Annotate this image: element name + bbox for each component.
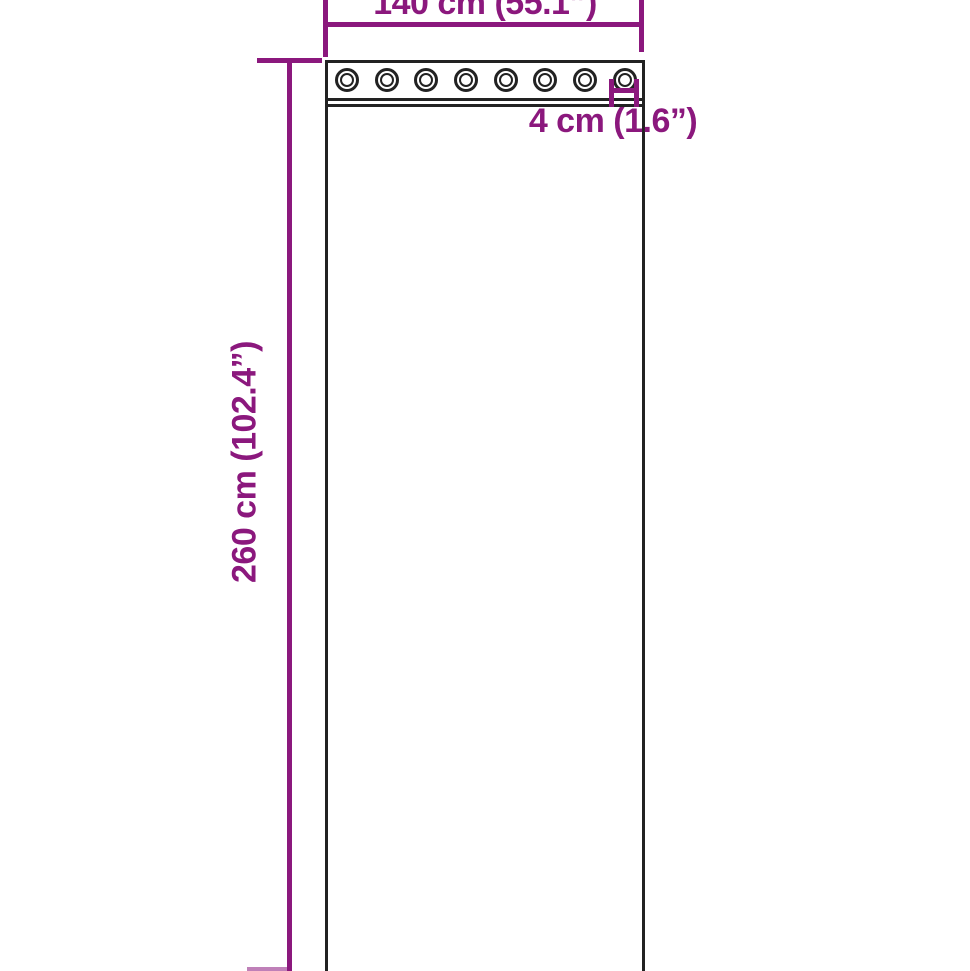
grommet-inner-ring	[340, 73, 354, 87]
grommet-inner-ring	[459, 73, 473, 87]
grommet-icon	[573, 68, 597, 92]
width-dimension-line	[323, 22, 643, 27]
grommet-inner-ring	[380, 73, 394, 87]
grommet-inner-ring	[618, 73, 632, 87]
width-dimension-tick-left	[323, 0, 328, 57]
curtain-panel	[325, 60, 645, 971]
grommet-inner-ring	[499, 73, 513, 87]
grommet-icon	[375, 68, 399, 92]
grommet-strip	[328, 68, 642, 92]
grommet-diameter-label: 4 cm (1.6”)	[529, 103, 697, 140]
grommet-inner-ring	[419, 73, 433, 87]
grommet-icon	[454, 68, 478, 92]
dimension-diagram: 140 cm (55.1”) 260 cm (102.4”) 4 cm (1.6…	[0, 0, 970, 971]
grommet-diameter-bracket-bar	[609, 88, 639, 93]
width-dimension-label: 140 cm (55.1”)	[373, 0, 597, 22]
grommet-icon	[335, 68, 359, 92]
grommet-inner-ring	[578, 73, 592, 87]
grommet-inner-ring	[538, 73, 552, 87]
grommet-icon	[414, 68, 438, 92]
grommet-icon	[533, 68, 557, 92]
height-dimension-line	[287, 58, 292, 971]
grommet-icon	[494, 68, 518, 92]
height-dimension-tick-bottom	[247, 967, 289, 971]
height-dimension-label: 260 cm (102.4”)	[226, 341, 263, 583]
